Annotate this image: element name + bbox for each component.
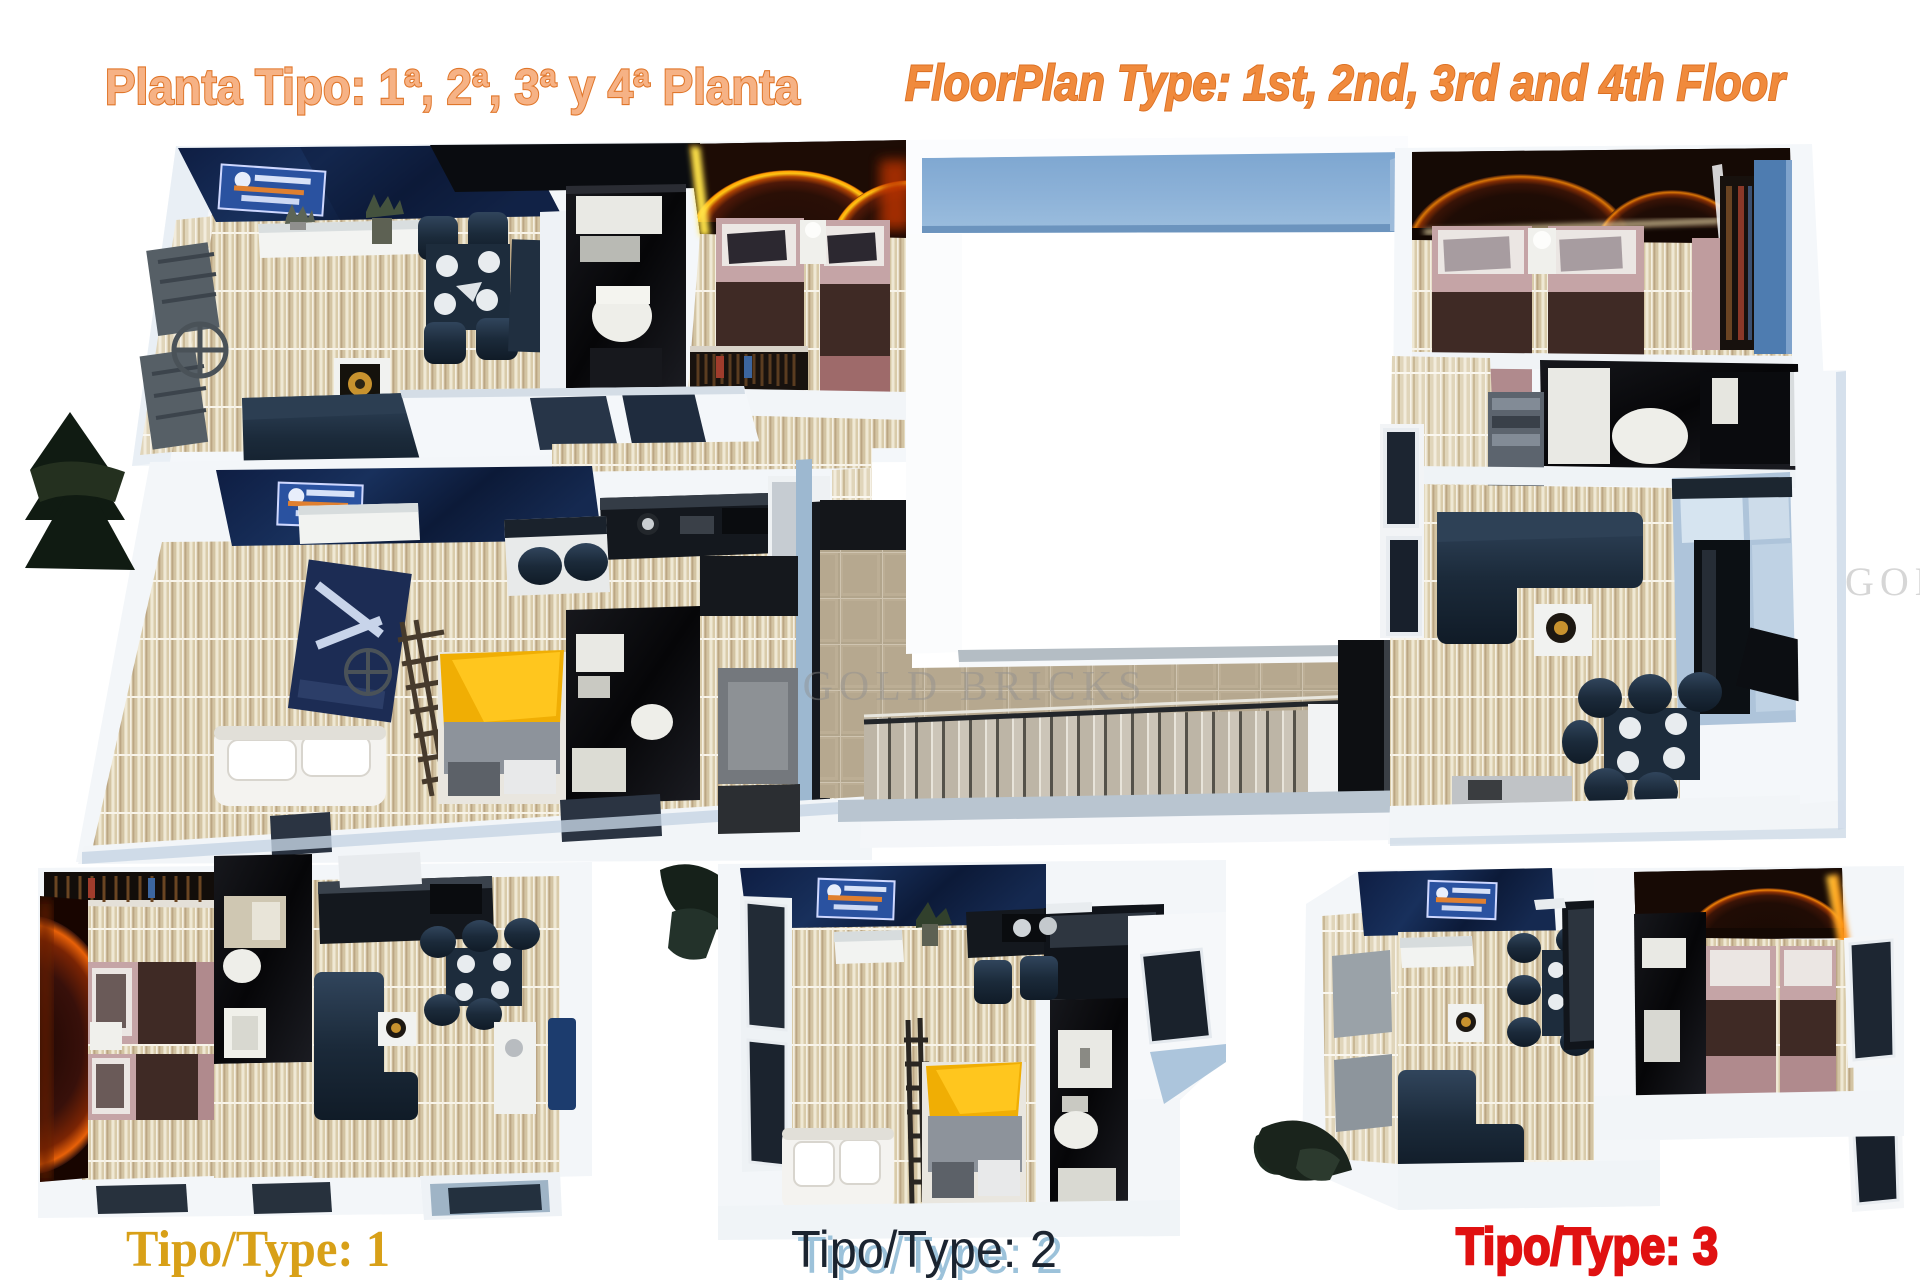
svg-text:Tipo/Type: 2: Tipo/Type: 2	[791, 1221, 1057, 1279]
svg-text:GOLD: GOLD	[1845, 559, 1920, 604]
svg-text:Planta Tipo: 1ª, 2ª, 3ª y 4ª P: Planta Tipo: 1ª, 2ª, 3ª y 4ª Planta	[105, 59, 801, 115]
svg-text:FloorPlan Type: 1st, 2nd, 3rd: FloorPlan Type: 1st, 2nd, 3rd and 4th Fl…	[905, 55, 1787, 111]
svg-text:Tipo/Type: 1: Tipo/Type: 1	[126, 1221, 390, 1278]
svg-text:GOLD BRICKS: GOLD BRICKS	[803, 664, 1148, 710]
svg-text:Tipo/Type: 3: Tipo/Type: 3	[1456, 1218, 1718, 1276]
